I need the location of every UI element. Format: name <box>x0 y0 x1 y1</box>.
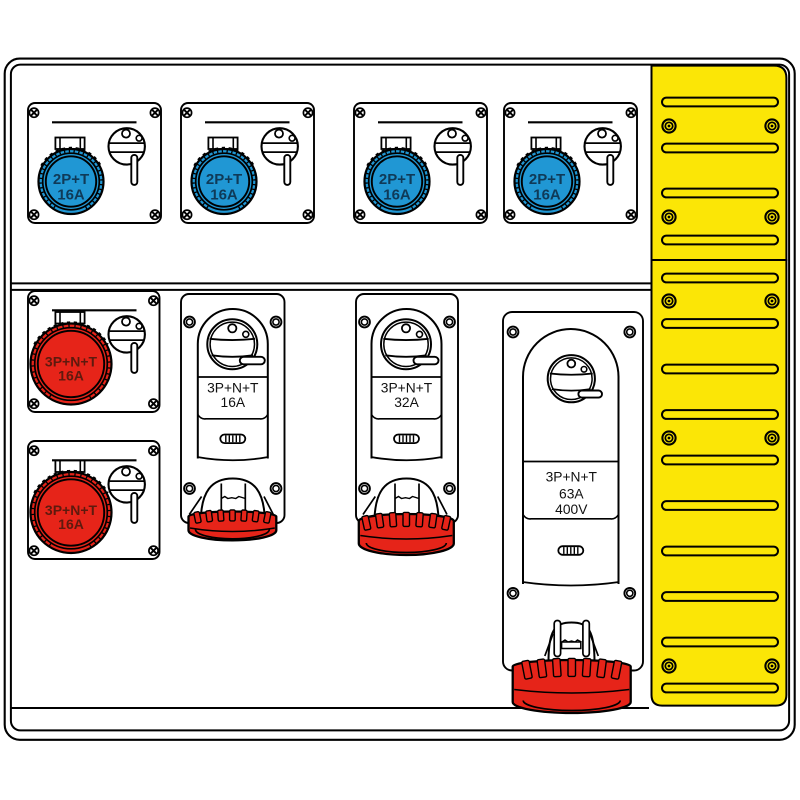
svg-text:63A: 63A <box>559 487 584 502</box>
svg-text:32A: 32A <box>394 395 419 410</box>
svg-text:2P+T: 2P+T <box>379 171 415 188</box>
svg-text:3P+N+T: 3P+N+T <box>546 470 598 485</box>
svg-text:3P+N+T: 3P+N+T <box>207 380 259 395</box>
svg-text:16A: 16A <box>221 395 246 410</box>
svg-text:16A: 16A <box>58 516 84 532</box>
svg-text:16A: 16A <box>58 368 84 384</box>
svg-text:16A: 16A <box>533 187 561 204</box>
svg-text:16A: 16A <box>383 187 411 204</box>
svg-text:2P+T: 2P+T <box>206 171 242 188</box>
svg-text:2P+T: 2P+T <box>529 171 565 188</box>
svg-text:16A: 16A <box>57 187 85 204</box>
svg-text:3P+N+T: 3P+N+T <box>381 380 433 395</box>
svg-text:400V: 400V <box>555 502 588 517</box>
svg-text:16A: 16A <box>210 187 238 204</box>
svg-text:2P+T: 2P+T <box>53 171 89 188</box>
